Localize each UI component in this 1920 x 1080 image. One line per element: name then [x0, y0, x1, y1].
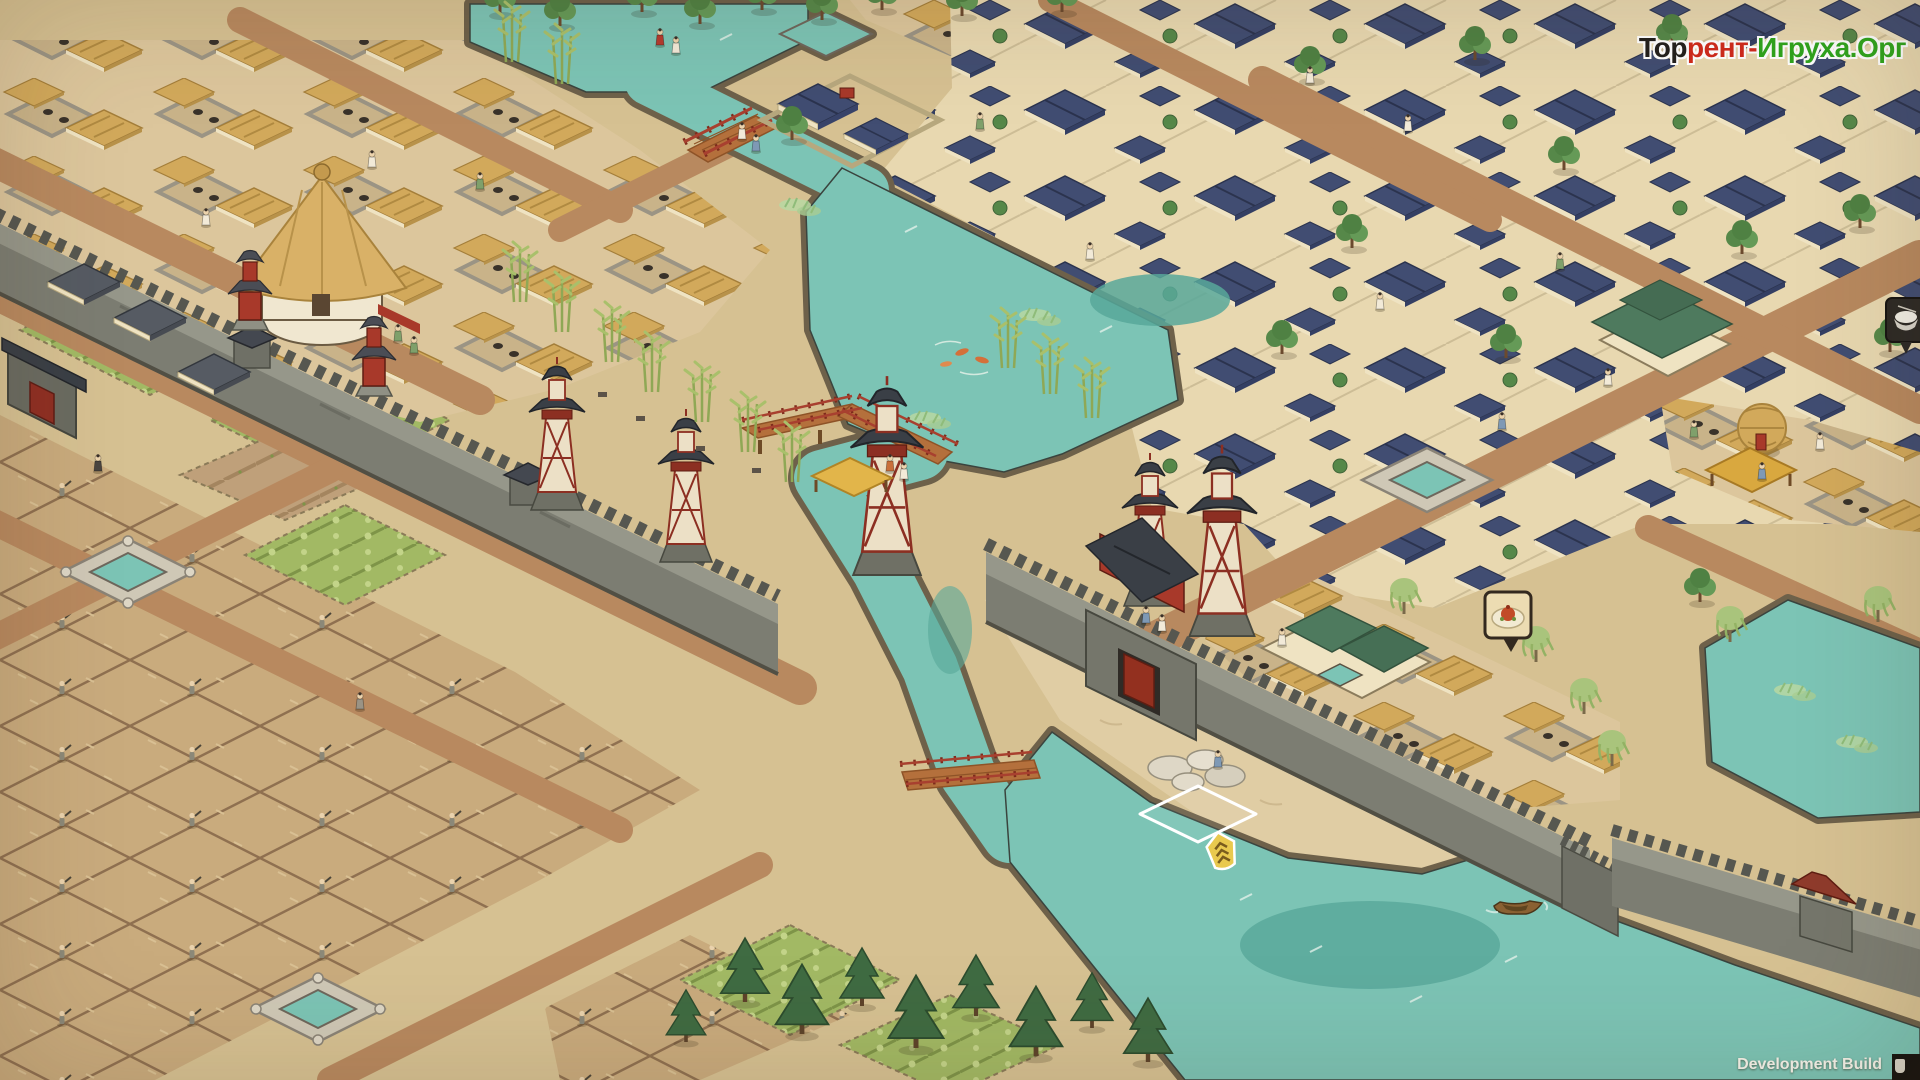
corner-system-box — [1892, 1054, 1920, 1080]
watermark-segment: Тор — [1639, 32, 1687, 63]
site-watermark: Торрент-Игруха.Орг — [1639, 32, 1906, 64]
watermark-segment: Игруха.Орг — [1757, 32, 1906, 63]
development-build-label: Development Build — [1737, 1056, 1882, 1074]
game-viewport: Торрент-Игруха.Орг Development Build — [0, 0, 1920, 1080]
watermark-segment: рент- — [1687, 32, 1757, 63]
